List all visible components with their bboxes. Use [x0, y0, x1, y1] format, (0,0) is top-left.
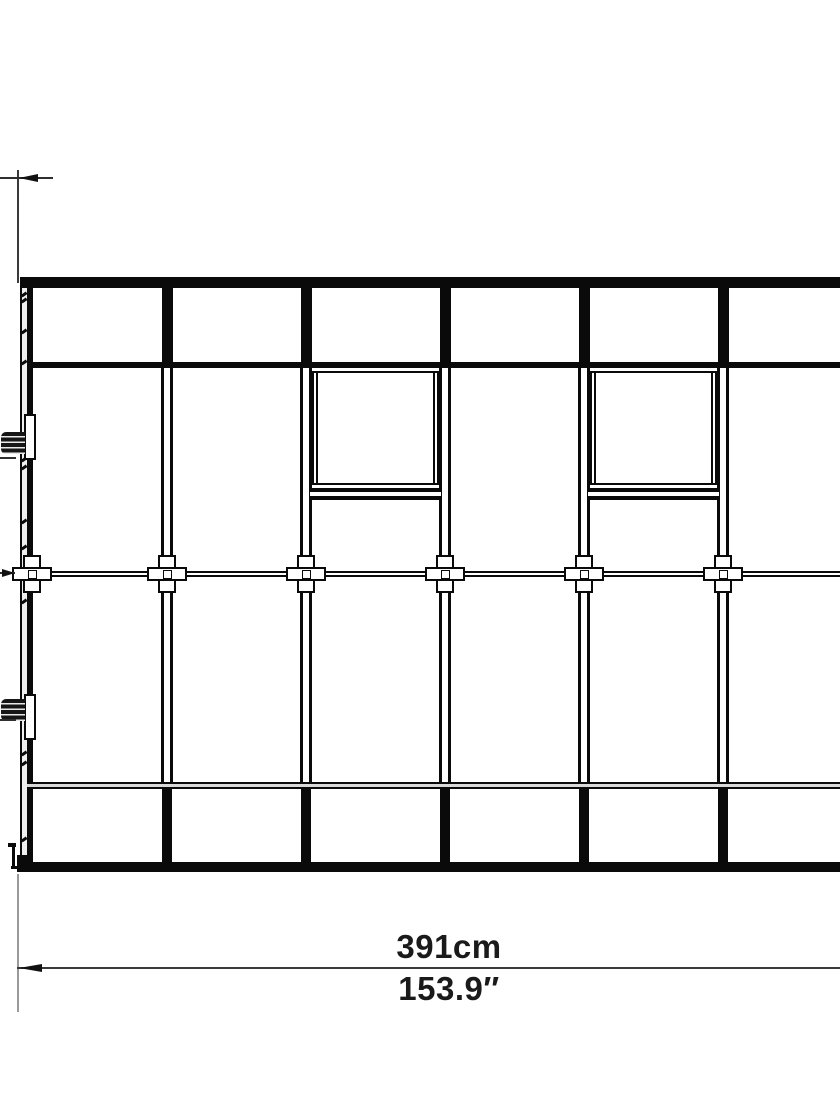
bottom-post — [162, 789, 172, 862]
bottom-post — [718, 789, 728, 862]
top-post — [440, 277, 451, 368]
top-post — [579, 277, 590, 368]
handle-leader-line — [0, 719, 16, 721]
cross-connector-core — [580, 570, 589, 579]
vent-window-inner-line — [316, 373, 318, 485]
bottom-extension-line — [17, 874, 19, 1012]
bottom-dimension-line — [17, 967, 840, 969]
width-dimension-label-inches: 153.9″ — [398, 970, 499, 1008]
vent-window-inner-line — [594, 373, 596, 485]
cross-connector-core — [441, 570, 450, 579]
top-arrow-left-icon — [19, 174, 38, 182]
top-extension-line — [17, 170, 19, 283]
mid-arrow-right-icon — [2, 569, 15, 577]
anchor-foot — [17, 855, 33, 872]
hinge-plate — [24, 694, 36, 740]
vent-window-inner-line — [433, 373, 435, 485]
cross-connector-core — [302, 570, 311, 579]
cross-connector-core — [163, 570, 172, 579]
hinge-plate — [24, 414, 36, 460]
bottom-post — [440, 789, 450, 862]
base-rail — [18, 862, 840, 872]
vent-window-sill — [588, 488, 719, 500]
lower-rail — [27, 782, 840, 789]
width-dimension-label-cm: 391cm — [396, 928, 501, 966]
handle-knob — [1, 432, 25, 454]
cross-connector-core — [28, 570, 37, 579]
elevation-diagram: 391cm 153.9″ — [0, 0, 840, 1120]
bottom-post — [579, 789, 589, 862]
vent-window-inner-line — [711, 373, 713, 485]
bottom-post — [301, 789, 311, 862]
anchor-foot — [8, 843, 16, 847]
bottom-arrow-left-icon — [19, 964, 42, 972]
handle-knob — [1, 699, 25, 721]
top-post — [718, 277, 729, 368]
handle-leader-line — [0, 457, 16, 459]
vent-window-sill — [310, 488, 441, 500]
vent-window-frame — [312, 371, 439, 485]
anchor-foot — [12, 845, 15, 868]
cross-connector-core — [719, 570, 728, 579]
top-post — [301, 277, 312, 368]
vent-window-frame — [590, 371, 717, 485]
top-post — [162, 277, 173, 368]
